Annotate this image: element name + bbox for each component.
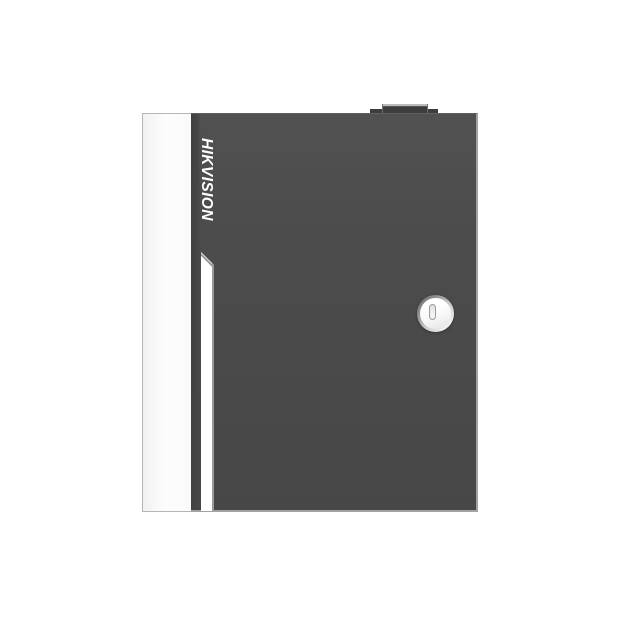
front-door: HIKVISION bbox=[191, 113, 478, 512]
accent-stripe bbox=[201, 252, 214, 511]
product-photo: HIKVISION bbox=[0, 0, 620, 620]
keyhole-icon bbox=[429, 304, 436, 320]
stripe-right-edge bbox=[212, 252, 214, 511]
door-lock bbox=[417, 295, 454, 332]
lock-face bbox=[420, 298, 451, 329]
brand-logo: HIKVISION bbox=[198, 138, 215, 232]
door-side-panel bbox=[142, 113, 191, 512]
enclosure: HIKVISION bbox=[142, 113, 478, 512]
